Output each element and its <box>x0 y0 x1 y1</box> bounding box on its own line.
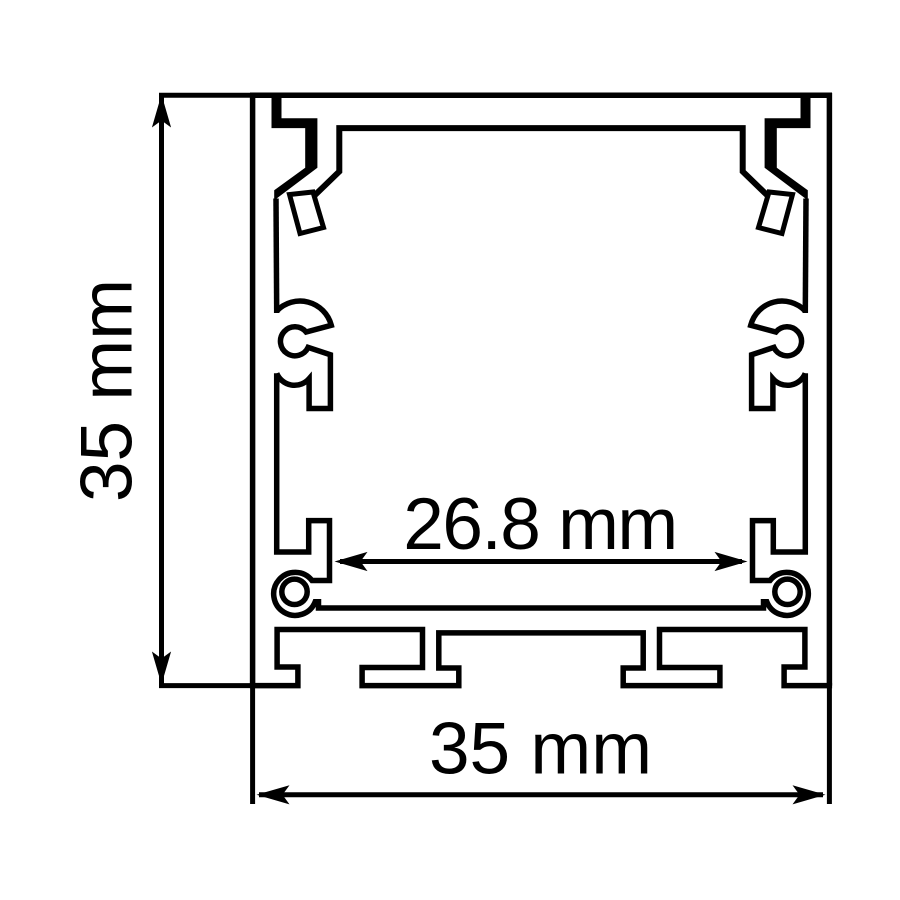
svg-text:26.8 mm: 26.8 mm <box>403 484 676 565</box>
svg-text:35 mm: 35 mm <box>429 709 652 790</box>
svg-text:35 mm: 35 mm <box>67 279 148 502</box>
